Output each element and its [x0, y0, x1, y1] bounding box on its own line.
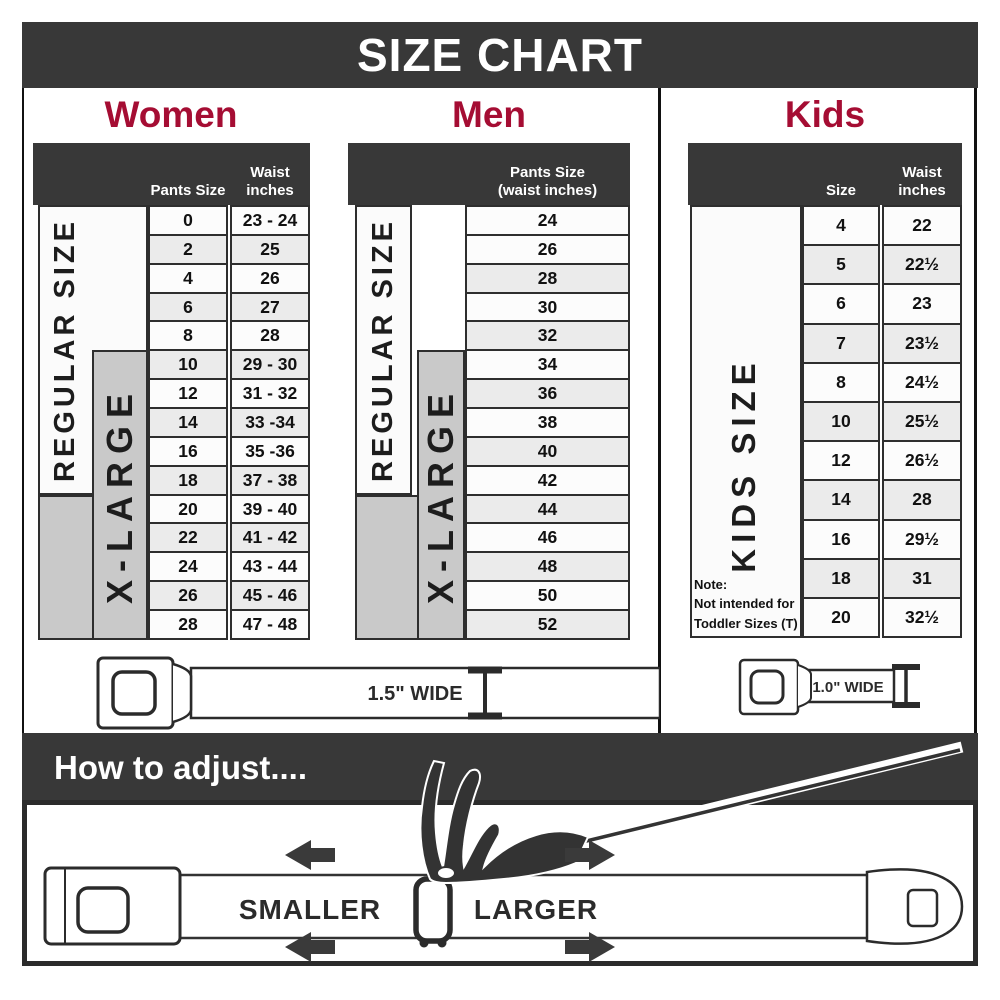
table-row: 24 43 - 44 — [148, 551, 310, 582]
table-row: 46 — [465, 522, 630, 553]
waist-cell: 23 — [882, 283, 962, 324]
waist-cell: 41 - 42 — [230, 522, 310, 553]
pants-size-cell: 8 — [148, 320, 228, 351]
width-measure-icon — [892, 667, 920, 705]
pants-size-cell: 26 — [465, 234, 630, 265]
pants-size-cell: 48 — [465, 551, 630, 582]
size-cell: 20 — [802, 597, 880, 638]
table-row: 26 45 - 46 — [148, 580, 310, 611]
size-chart-page: SIZE CHART Women Men Kids Pants Size Wai… — [0, 0, 1000, 1000]
waist-cell: 25 — [230, 234, 310, 265]
table-row: 8 24½ — [802, 362, 962, 403]
pants-size-cell: 14 — [148, 407, 228, 438]
table-row: 28 — [465, 263, 630, 294]
adult-belt-width-label: 1.5" WIDE — [367, 683, 462, 705]
men-title: Men — [379, 94, 599, 138]
table-row: 28 47 - 48 — [148, 609, 310, 640]
size-cell: 5 — [802, 244, 880, 285]
table-row: 8 28 — [148, 320, 310, 351]
women-title: Women — [61, 94, 281, 138]
pants-size-cell: 20 — [148, 494, 228, 525]
belt-buckle-icon — [740, 660, 811, 714]
table-row: 2 25 — [148, 234, 310, 265]
waist-cell: 27 — [230, 292, 310, 323]
table-row: 30 — [465, 292, 630, 323]
pants-size-cell: 44 — [465, 494, 630, 525]
pants-size-cell: 46 — [465, 522, 630, 553]
table-row: 10 25½ — [802, 401, 962, 442]
pants-size-cell: 50 — [465, 580, 630, 611]
pants-size-cell: 0 — [148, 205, 228, 236]
table-row: 26 — [465, 234, 630, 265]
table-row: 32 — [465, 320, 630, 351]
men-xlarge-label: X-LARGE — [426, 350, 456, 640]
waist-cell: 35 -36 — [230, 436, 310, 467]
size-cell: 8 — [802, 362, 880, 403]
table-row: 44 — [465, 494, 630, 525]
waist-cell: 31 - 32 — [230, 378, 310, 409]
size-cell: 10 — [802, 401, 880, 442]
kids-size-label: KIDS SIZE — [729, 325, 759, 605]
pants-size-cell: 28 — [465, 263, 630, 294]
women-table: Pants Size Waist inches REGULAR SIZE X-L… — [33, 143, 310, 640]
panel-left-border — [22, 88, 24, 733]
kids-belt-width-label: 1.0" WIDE — [812, 679, 883, 696]
size-cell: 12 — [802, 440, 880, 481]
waist-cell: 23½ — [882, 323, 962, 364]
waist-cell: 28 — [882, 479, 962, 520]
men-table-header: Pants Size (waist inches) — [348, 143, 630, 205]
waist-cell: 22 — [882, 205, 962, 246]
waist-cell: 33 -34 — [230, 407, 310, 438]
size-cell: 7 — [802, 323, 880, 364]
pants-size-cell: 24 — [465, 205, 630, 236]
table-row: 18 31 — [802, 558, 962, 599]
size-cell: 6 — [802, 283, 880, 324]
adult-belt-diagram: 1.5" WIDE — [95, 650, 660, 735]
waist-cell: 26½ — [882, 440, 962, 481]
table-row: 16 35 -36 — [148, 436, 310, 467]
table-row: 0 23 - 24 — [148, 205, 310, 236]
size-cell: 14 — [802, 479, 880, 520]
pants-size-cell: 32 — [465, 320, 630, 351]
belt-buckle-icon — [45, 868, 180, 944]
waist-cell: 22½ — [882, 244, 962, 285]
table-row: 6 23 — [802, 283, 962, 324]
waist-cell: 39 - 40 — [230, 494, 310, 525]
table-row: 50 — [465, 580, 630, 611]
table-row: 20 32½ — [802, 597, 962, 638]
panel-right-border — [974, 88, 977, 733]
size-cell: 16 — [802, 519, 880, 560]
women-table-header: Pants Size Waist inches — [33, 143, 310, 205]
kids-table: Size Waist inches KIDS SIZE Note: Not in… — [688, 143, 962, 638]
table-row: 12 26½ — [802, 440, 962, 481]
table-row: 52 — [465, 609, 630, 640]
waist-cell: 43 - 44 — [230, 551, 310, 582]
waist-cell: 28 — [230, 320, 310, 351]
pants-size-cell: 30 — [465, 292, 630, 323]
pants-size-cell: 10 — [148, 349, 228, 380]
pants-size-cell: 22 — [148, 522, 228, 553]
table-row: 36 — [465, 378, 630, 409]
table-row: 4 26 — [148, 263, 310, 294]
table-row: 14 33 -34 — [148, 407, 310, 438]
size-cell: 4 — [802, 205, 880, 246]
men-rows: 24 26 28 30 32 34 36 38 40 42 44 46 — [465, 205, 630, 640]
pants-size-cell: 38 — [465, 407, 630, 438]
kids-title: Kids — [715, 94, 935, 138]
table-row: 12 31 - 32 — [148, 378, 310, 409]
larger-label: LARGER — [474, 894, 598, 925]
thumbnail — [437, 867, 455, 879]
women-rows: 0 23 - 24 2 25 4 26 6 27 8 28 10 29 - 30… — [148, 205, 310, 640]
belt-adjuster — [416, 879, 450, 948]
kids-col-waist: Waist inches — [882, 164, 962, 200]
pants-size-cell: 16 — [148, 436, 228, 467]
belt-buckle-icon — [98, 658, 191, 728]
pants-size-cell: 40 — [465, 436, 630, 467]
pants-size-cell: 34 — [465, 349, 630, 380]
kids-divider — [658, 88, 661, 733]
waist-cell: 47 - 48 — [230, 609, 310, 640]
pants-size-cell: 6 — [148, 292, 228, 323]
pants-size-cell: 4 — [148, 263, 228, 294]
table-row: 34 — [465, 349, 630, 380]
table-row: 20 39 - 40 — [148, 494, 310, 525]
table-row: 4 22 — [802, 205, 962, 246]
kids-table-header: Size Waist inches — [688, 143, 962, 205]
how-to-adjust-section: How to adjust.... — [22, 733, 978, 966]
pants-size-cell: 12 — [148, 378, 228, 409]
table-row: 38 — [465, 407, 630, 438]
men-table: Pants Size (waist inches) REGULAR SIZE X… — [348, 143, 630, 640]
kids-rows: 4 22 5 22½ 6 23 7 23½ 8 24½ 10 25½ 12 26… — [802, 205, 962, 638]
belt-end-tab-icon — [867, 869, 962, 943]
table-row: 5 22½ — [802, 244, 962, 285]
men-regular-size-label: REGULAR SIZE — [368, 205, 398, 495]
waist-cell: 31 — [882, 558, 962, 599]
women-xlarge-label: X-LARGE — [105, 350, 135, 640]
waist-cell: 29 - 30 — [230, 349, 310, 380]
waist-cell: 29½ — [882, 519, 962, 560]
waist-cell: 23 - 24 — [230, 205, 310, 236]
waist-cell: 25½ — [882, 401, 962, 442]
table-row: 48 — [465, 551, 630, 582]
table-row: 42 — [465, 465, 630, 496]
table-row: 6 27 — [148, 292, 310, 323]
pants-size-cell: 2 — [148, 234, 228, 265]
pants-size-cell: 28 — [148, 609, 228, 640]
table-row: 16 29½ — [802, 519, 962, 560]
smaller-label: SMALLER — [239, 894, 381, 925]
title-banner: SIZE CHART — [22, 22, 978, 88]
waist-cell: 45 - 46 — [230, 580, 310, 611]
waist-cell: 32½ — [882, 597, 962, 638]
table-row: 7 23½ — [802, 323, 962, 364]
adjust-title: How to adjust.... — [54, 749, 307, 786]
table-row: 14 28 — [802, 479, 962, 520]
pants-size-cell: 24 — [148, 551, 228, 582]
page-title: SIZE CHART — [357, 28, 643, 82]
pants-size-cell: 26 — [148, 580, 228, 611]
waist-cell: 24½ — [882, 362, 962, 403]
kids-belt-diagram: 1.0" WIDE — [700, 655, 962, 721]
women-regular-size-label: REGULAR SIZE — [50, 205, 80, 495]
waist-cell: 37 - 38 — [230, 465, 310, 496]
pants-size-cell: 52 — [465, 609, 630, 640]
table-row: 22 41 - 42 — [148, 522, 310, 553]
pants-size-cell: 42 — [465, 465, 630, 496]
women-col-pants-size: Pants Size — [148, 182, 228, 200]
table-row: 18 37 - 38 — [148, 465, 310, 496]
pants-size-cell: 18 — [148, 465, 228, 496]
men-col-pants-size: Pants Size (waist inches) — [465, 164, 630, 200]
pants-size-cell: 36 — [465, 378, 630, 409]
women-col-waist: Waist inches — [230, 164, 310, 200]
kids-col-size: Size — [802, 182, 880, 200]
waist-cell: 26 — [230, 263, 310, 294]
size-cell: 18 — [802, 558, 880, 599]
table-row: 24 — [465, 205, 630, 236]
table-row: 40 — [465, 436, 630, 467]
kids-note: Note: Not intended for Toddler Sizes (T) — [694, 575, 806, 634]
table-row: 10 29 - 30 — [148, 349, 310, 380]
